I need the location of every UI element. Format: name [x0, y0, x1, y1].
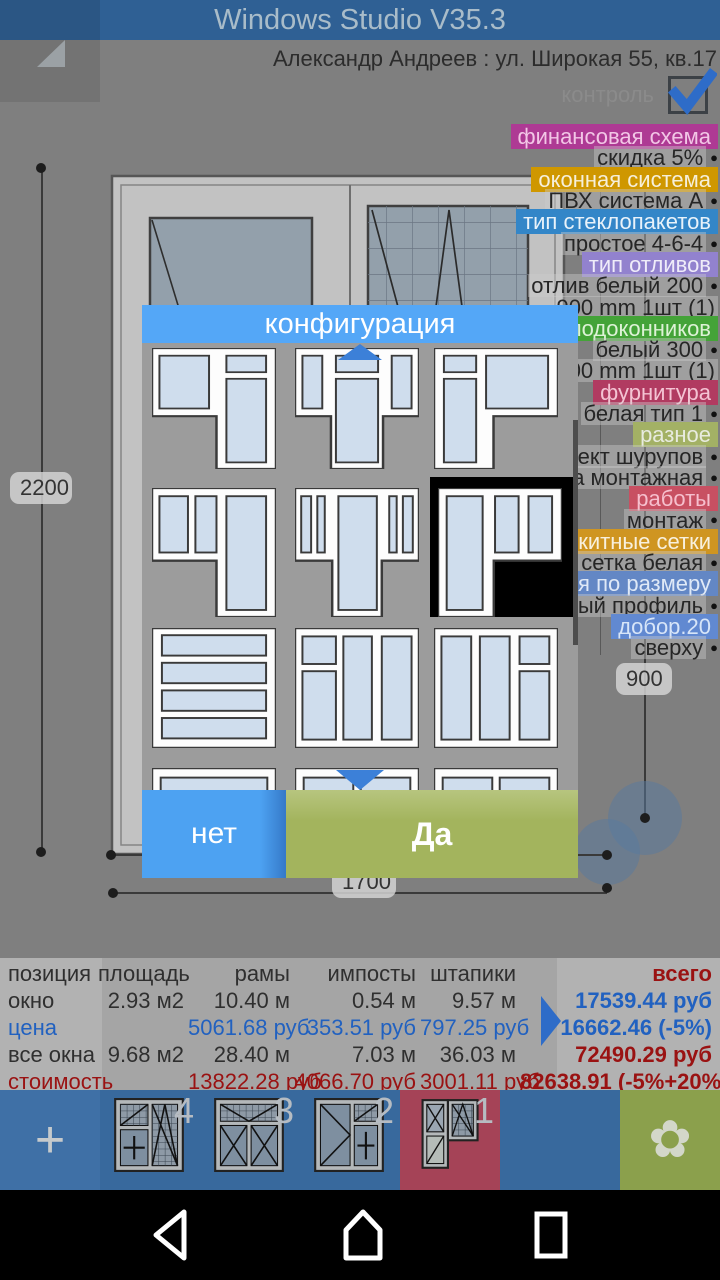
dimension-width-label-right[interactable]: 900 [616, 663, 672, 695]
dialog-title: конфигурация [142, 305, 578, 343]
table-row: окно2.93 м210.40 м0.54 м9.57 м17539.44 р… [0, 987, 720, 1014]
tab-window-1[interactable]: 1 [400, 1090, 500, 1190]
col-header: импосты [294, 961, 420, 987]
config-tile-split-left[interactable] [295, 628, 419, 748]
col-header: площадь [98, 961, 188, 987]
spec-category-row: оконная система [458, 169, 718, 190]
cell-beads: 797.25 руб [420, 1015, 520, 1041]
dialog-header: конфигурация [142, 305, 578, 343]
spec-bullet-icon: ● [710, 150, 718, 165]
cell-frames: 28.40 м [188, 1042, 294, 1068]
tab-window-3[interactable]: 3 [200, 1090, 300, 1190]
dialog-scrollbar[interactable] [573, 420, 578, 645]
row-label: окно [0, 988, 98, 1014]
title-bar: Windows Studio V35.3 [0, 0, 720, 40]
config-tile-stub-wide[interactable] [152, 768, 276, 790]
config-tile-door-center[interactable] [295, 348, 419, 469]
config-tile-selected[interactable] [430, 477, 573, 617]
spec-value-label[interactable]: отлив белый 200 [528, 274, 706, 297]
add-window-button[interactable]: + [0, 1090, 100, 1190]
dimension-line-left [41, 168, 43, 852]
spec-bullet-icon: ● [710, 555, 718, 570]
table-row: все окна9.68 м228.40 м7.03 м36.03 м72490… [0, 1041, 720, 1068]
checkmark-icon [665, 63, 717, 115]
spec-category-row: тип стеклопакетов [458, 211, 718, 232]
configuration-grid [142, 343, 578, 790]
cell-area: 9.68 м2 [98, 1042, 188, 1068]
row-label: все окна [0, 1042, 98, 1068]
app-screen: Windows Studio V35.3 Александр Андреев :… [0, 0, 720, 1280]
cell-mullions: 353.51 руб [294, 1015, 420, 1041]
config-tile-stub-two[interactable] [434, 768, 558, 790]
col-header: штапики [420, 961, 520, 987]
dimension-dot[interactable] [106, 850, 116, 860]
col-header: рамы [188, 961, 294, 987]
app-title: Windows Studio V35.3 [0, 0, 720, 40]
spec-bullet-icon: ● [710, 278, 718, 293]
col-header-total: всего [520, 961, 716, 987]
control-checkbox[interactable] [668, 76, 708, 114]
customer-info: Александр Андреев : ул. Широкая 55, кв.1… [273, 46, 717, 72]
tab-number: 4 [174, 1090, 194, 1132]
tab-window-4[interactable]: 4 [100, 1090, 200, 1190]
config-tile-door-left-2panes [438, 488, 562, 617]
spec-bullet-icon: ● [710, 598, 718, 613]
cell-mullions: 7.03 м [294, 1042, 420, 1068]
spec-bullet-icon: ● [710, 236, 718, 251]
tab-number: 3 [274, 1090, 294, 1132]
scroll-down-icon[interactable] [336, 770, 384, 790]
spec-bullet-icon: ● [710, 512, 718, 527]
dimension-height-label[interactable]: 2200 [10, 472, 72, 504]
dimension-dot[interactable] [36, 163, 46, 173]
spec-bullet-icon: ● [710, 449, 718, 464]
spec-bullet-icon: ● [710, 193, 718, 208]
cell-mullions: 0.54 м [294, 988, 420, 1014]
config-tile-split-right[interactable] [434, 628, 558, 748]
spec-bullet-icon: ● [710, 406, 718, 421]
cell-frames: 5061.68 руб [188, 1015, 294, 1041]
config-tile-narrow-door-center[interactable] [295, 488, 419, 617]
tab-window-2[interactable]: 2 [300, 1090, 400, 1190]
dimension-dot[interactable] [108, 888, 118, 898]
corner-block [0, 0, 100, 40]
control-label: контроль [561, 82, 654, 108]
recents-icon[interactable] [532, 1207, 572, 1263]
cell-frames: 10.40 м [188, 988, 294, 1014]
tab-number: 1 [474, 1090, 494, 1132]
home-icon[interactable] [338, 1207, 388, 1263]
dimension-dot[interactable] [602, 883, 612, 893]
config-tile-door-left[interactable] [434, 348, 558, 469]
config-tile-door-right[interactable] [152, 348, 276, 469]
cancel-button[interactable]: нет [142, 790, 286, 878]
spec-value-row: отлив белый 200● [458, 275, 718, 296]
config-tile-slats4[interactable] [152, 628, 276, 748]
spec-value-row: ПВХ система А● [458, 190, 718, 211]
cell-area: 2.93 м2 [98, 988, 188, 1014]
dimension-dot[interactable] [640, 813, 650, 823]
back-icon[interactable] [148, 1207, 192, 1263]
spec-category-row: тип отливов [458, 254, 718, 275]
spec-bullet-icon: ● [710, 470, 718, 485]
flower-icon: ✿ [648, 1110, 692, 1170]
tab-number: 2 [374, 1090, 394, 1132]
scroll-up-icon[interactable] [338, 344, 382, 360]
dimension-dot[interactable] [602, 850, 612, 860]
spec-category-row: финансовая схема [458, 126, 718, 147]
cell-beads: 36.03 м [420, 1042, 520, 1068]
spec-bullet-icon: ● [710, 342, 718, 357]
spec-value-row: простое 4-6-4● [458, 232, 718, 253]
table-row: цена5061.68 руб353.51 руб797.25 руб16662… [0, 1014, 720, 1041]
dimension-dot[interactable] [36, 847, 46, 857]
spec-value-label[interactable]: сверху [631, 636, 706, 659]
price-arrow-icon [541, 996, 563, 1046]
corner-fold-icon [37, 40, 65, 67]
config-tile-panes2-door-right[interactable] [152, 488, 276, 617]
spec-value-row: скидка 5%● [458, 147, 718, 168]
settings-flower-button[interactable]: ✿ [620, 1090, 720, 1190]
col-header: позиция [0, 961, 98, 987]
confirm-button[interactable]: Да [286, 790, 578, 878]
spec-bullet-icon: ● [710, 640, 718, 655]
row-label: цена [0, 1015, 98, 1041]
table-row: позицияплощадьрамыимпостыштапикивсего [0, 960, 720, 987]
control-row: контроль [561, 76, 708, 114]
cell-beads: 9.57 м [420, 988, 520, 1014]
